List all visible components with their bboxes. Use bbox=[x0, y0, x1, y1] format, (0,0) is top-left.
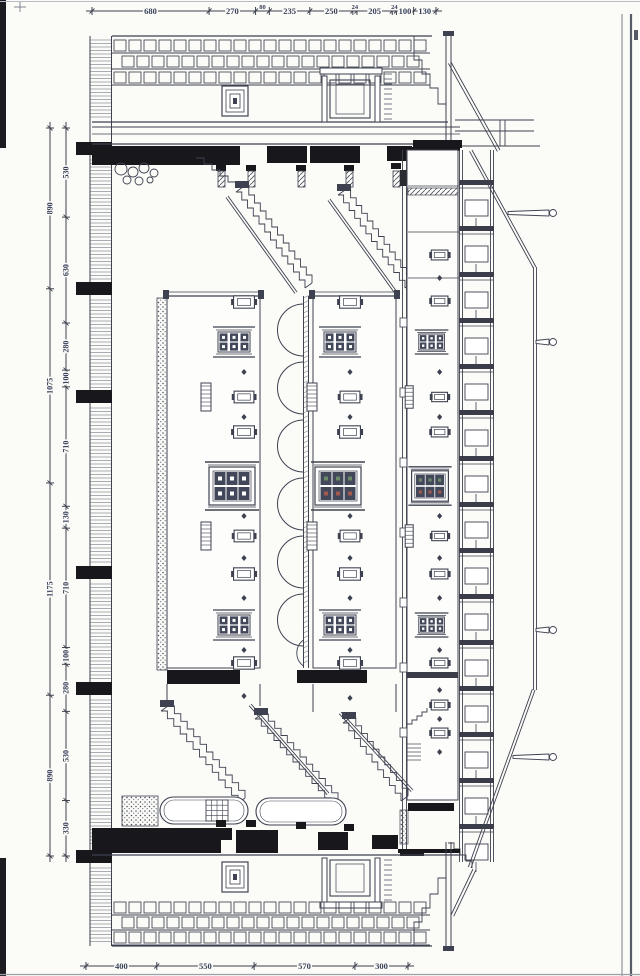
pole-finial bbox=[550, 754, 557, 761]
window-ear bbox=[429, 730, 432, 736]
pane-light bbox=[422, 620, 424, 622]
small-window bbox=[340, 391, 360, 403]
pane-light bbox=[428, 478, 431, 481]
pane-light bbox=[419, 490, 422, 493]
pane-light bbox=[422, 627, 424, 629]
dimension-label: 530 bbox=[62, 750, 71, 762]
window-ear bbox=[254, 533, 257, 539]
pane-light bbox=[230, 477, 234, 481]
pane-light bbox=[419, 478, 422, 481]
dimension-label: 1075 bbox=[46, 378, 55, 394]
dimension-label: 400 bbox=[115, 961, 128, 971]
pane-light bbox=[430, 620, 432, 622]
beam-end bbox=[465, 614, 488, 630]
window-ear bbox=[430, 533, 433, 539]
pane-light bbox=[222, 345, 225, 348]
pane-light bbox=[233, 628, 236, 631]
small-window bbox=[431, 728, 448, 738]
pane-light bbox=[328, 345, 331, 348]
dimension-label: 630 bbox=[62, 264, 71, 276]
pane-light bbox=[242, 492, 246, 496]
pane-light bbox=[336, 477, 340, 481]
dimension-label: 24 bbox=[352, 4, 359, 11]
dimension-label: 330 bbox=[62, 822, 71, 834]
section-poche bbox=[92, 828, 210, 853]
window-ear bbox=[337, 299, 340, 305]
window-ear bbox=[338, 533, 341, 539]
dimension-label: 280 bbox=[62, 682, 71, 694]
window-ear bbox=[360, 299, 363, 305]
pane-light bbox=[222, 628, 225, 631]
beam-section bbox=[76, 682, 112, 695]
window-ear bbox=[231, 660, 234, 666]
timber-post bbox=[298, 171, 305, 187]
pane-light bbox=[349, 628, 352, 631]
beam-end bbox=[465, 798, 488, 814]
pane-light bbox=[430, 337, 432, 339]
window-ear bbox=[448, 702, 451, 708]
window-ear bbox=[448, 252, 451, 258]
cornice-cap bbox=[258, 290, 264, 299]
window-ear bbox=[254, 660, 257, 666]
section-poche bbox=[92, 146, 240, 165]
window-ear bbox=[254, 394, 257, 400]
section-poche bbox=[236, 830, 278, 853]
beam-end bbox=[465, 522, 488, 538]
window-ear bbox=[337, 660, 340, 666]
pane-light bbox=[233, 619, 236, 622]
window-ear bbox=[448, 298, 451, 304]
window-ear bbox=[254, 299, 257, 305]
window-ear bbox=[429, 252, 432, 258]
pane-light bbox=[439, 337, 441, 339]
small-window bbox=[234, 568, 255, 580]
pane-light bbox=[218, 477, 222, 481]
small-window bbox=[234, 426, 255, 438]
shutter-panel bbox=[201, 383, 211, 411]
section-poche bbox=[267, 146, 307, 163]
pane-light bbox=[242, 477, 246, 481]
pole-finial bbox=[550, 627, 557, 634]
vault bbox=[160, 797, 248, 824]
dimension-label: 570 bbox=[298, 961, 311, 971]
ridge-pole bbox=[508, 210, 549, 216]
beam-end bbox=[465, 430, 488, 446]
window-ear bbox=[337, 571, 340, 577]
ridge-pole bbox=[536, 339, 549, 345]
window-ear bbox=[448, 730, 451, 736]
gate-post bbox=[322, 76, 327, 122]
dimension-label: 130 bbox=[418, 6, 431, 16]
beam-end bbox=[465, 568, 488, 584]
pane-light bbox=[324, 492, 328, 496]
corner-cap bbox=[443, 946, 454, 951]
bay-beam bbox=[459, 686, 494, 691]
bay-beam bbox=[459, 594, 494, 599]
pane-light bbox=[218, 492, 222, 496]
bay-beam bbox=[459, 640, 494, 645]
pane-light bbox=[349, 619, 352, 622]
window-ear bbox=[430, 394, 433, 400]
beam-end bbox=[465, 292, 488, 308]
shutter-panel bbox=[201, 522, 211, 550]
wall-body bbox=[112, 856, 448, 946]
pane-light bbox=[328, 628, 331, 631]
bay-beam bbox=[459, 318, 494, 323]
ridge-cap bbox=[342, 712, 356, 719]
window-ear bbox=[254, 571, 257, 577]
floor-poche bbox=[408, 803, 454, 811]
dimension-label: 24 bbox=[391, 4, 398, 11]
pane-light bbox=[336, 492, 340, 496]
dimension-label: 100 bbox=[399, 6, 412, 16]
hall-2 bbox=[307, 290, 400, 669]
dimension-label: 710 bbox=[62, 582, 71, 594]
beam-poche bbox=[413, 140, 462, 148]
pane-light bbox=[243, 345, 246, 348]
pane-light bbox=[230, 492, 234, 496]
wall-plaque bbox=[233, 874, 237, 880]
pane-light bbox=[439, 620, 441, 622]
beam-end bbox=[465, 706, 488, 722]
pane-light bbox=[349, 345, 352, 348]
window-ear bbox=[448, 571, 451, 577]
small-window bbox=[340, 426, 361, 438]
small-window bbox=[431, 700, 448, 710]
bay-beam bbox=[459, 778, 494, 783]
window-ear bbox=[360, 394, 363, 400]
timber-post bbox=[218, 171, 225, 187]
post-cap bbox=[296, 822, 306, 829]
pane-light bbox=[233, 345, 236, 348]
beam-end bbox=[465, 660, 488, 676]
section-poche bbox=[372, 835, 398, 849]
ridge-cap bbox=[337, 184, 351, 191]
bay-beam bbox=[459, 732, 494, 737]
sectioned-wall bbox=[400, 810, 408, 844]
timber-post bbox=[393, 171, 400, 187]
ridge-cap bbox=[235, 181, 249, 188]
hall-3 bbox=[405, 150, 458, 800]
pane-light bbox=[233, 336, 236, 339]
beam-section bbox=[76, 282, 112, 295]
window-ear bbox=[429, 429, 432, 435]
gate-post bbox=[322, 858, 327, 904]
beam-end bbox=[465, 476, 488, 492]
pane-light bbox=[243, 619, 246, 622]
cornice-cap bbox=[309, 290, 315, 299]
dimension-label: 280 bbox=[62, 341, 71, 353]
bay-beam bbox=[459, 272, 494, 277]
architectural-section-drawing: 6802708023525024205241001304005505703008… bbox=[0, 0, 640, 976]
sheet-mark bbox=[634, 30, 638, 40]
dimension-label: 890 bbox=[46, 202, 55, 214]
small-window bbox=[234, 391, 254, 403]
dimension-label: 250 bbox=[325, 6, 338, 16]
floor-poche bbox=[167, 670, 240, 684]
bay-beam bbox=[459, 410, 494, 415]
pane-light bbox=[324, 477, 328, 481]
post-cap bbox=[246, 165, 256, 171]
small-window bbox=[340, 530, 360, 542]
window-ear bbox=[447, 394, 450, 400]
window-ear bbox=[429, 571, 432, 577]
beam-section bbox=[76, 390, 112, 403]
window-ear bbox=[360, 429, 363, 435]
small-window bbox=[431, 658, 448, 668]
window-ear bbox=[232, 533, 235, 539]
pane-light bbox=[328, 336, 331, 339]
dimension-label: 80 bbox=[259, 4, 266, 11]
bay-beam bbox=[459, 548, 494, 553]
window-ear bbox=[429, 298, 432, 304]
section-poche bbox=[318, 832, 348, 850]
pane-light bbox=[328, 619, 331, 622]
section-poche bbox=[310, 146, 360, 163]
ridge-cap bbox=[160, 700, 174, 707]
small-window bbox=[431, 250, 448, 260]
rubble-fill bbox=[122, 796, 158, 826]
dimension-label: 710 bbox=[62, 441, 71, 453]
pane-light bbox=[422, 337, 424, 339]
pane-light bbox=[348, 477, 352, 481]
dimension-label: 530 bbox=[62, 167, 71, 179]
hall-1 bbox=[157, 290, 264, 670]
beam-end bbox=[465, 752, 488, 768]
dimension-label: 130 bbox=[62, 511, 71, 523]
floor-poche bbox=[407, 672, 458, 678]
beam-end bbox=[465, 246, 488, 262]
cornice-cap bbox=[394, 290, 400, 299]
eave-band bbox=[408, 188, 458, 195]
timber-post bbox=[248, 171, 255, 187]
small-window bbox=[340, 296, 361, 308]
beam-end bbox=[465, 338, 488, 354]
shutter-panel bbox=[405, 386, 413, 408]
dimension-label: 300 bbox=[375, 961, 388, 971]
window-ear bbox=[360, 571, 363, 577]
window-ear bbox=[429, 660, 432, 666]
post-cap bbox=[216, 820, 226, 827]
small-window bbox=[431, 427, 448, 437]
small-window bbox=[340, 568, 361, 580]
bay-beam bbox=[459, 824, 494, 829]
scan-edge bbox=[0, 858, 6, 976]
ridge-pole bbox=[513, 754, 549, 760]
beam-section bbox=[76, 566, 112, 579]
small-window bbox=[432, 531, 448, 540]
window-ear bbox=[231, 571, 234, 577]
window-ear bbox=[337, 429, 340, 435]
small-window bbox=[234, 296, 255, 308]
vault bbox=[256, 798, 346, 825]
post-cap bbox=[246, 820, 256, 827]
pole-finial bbox=[550, 210, 557, 217]
pane-light bbox=[222, 619, 225, 622]
gate-lintel bbox=[320, 68, 382, 74]
corner-cap bbox=[443, 31, 454, 36]
pane-light bbox=[339, 345, 342, 348]
pane-light bbox=[439, 344, 441, 346]
window-ear bbox=[448, 429, 451, 435]
pane-light bbox=[348, 492, 352, 496]
dimension-label: 205 bbox=[368, 6, 381, 16]
bay-beam bbox=[459, 226, 494, 231]
small-window bbox=[234, 530, 254, 542]
dimension-label: 890 bbox=[46, 770, 55, 782]
pane-light bbox=[243, 628, 246, 631]
floor-poche bbox=[297, 670, 367, 683]
shutter-panel bbox=[307, 522, 317, 550]
post-cap bbox=[344, 165, 354, 171]
small-window bbox=[432, 392, 448, 401]
window-ear bbox=[360, 533, 363, 539]
dimension-label: 550 bbox=[199, 961, 212, 971]
window-ear bbox=[231, 429, 234, 435]
small-window bbox=[340, 657, 361, 669]
window-ear bbox=[429, 702, 432, 708]
dimension-label: 680 bbox=[144, 6, 157, 16]
post-cap bbox=[296, 165, 306, 171]
pane-light bbox=[339, 336, 342, 339]
shutter-panel bbox=[405, 525, 413, 547]
bottom-boundary-wall bbox=[92, 842, 476, 951]
pane-light bbox=[438, 478, 441, 481]
gate-post bbox=[375, 76, 380, 122]
pane-light bbox=[339, 619, 342, 622]
dimension-label: 100 bbox=[62, 373, 71, 385]
pane-light bbox=[222, 336, 225, 339]
window-ear bbox=[448, 660, 451, 666]
pane-light bbox=[243, 336, 246, 339]
window-ear bbox=[231, 299, 234, 305]
bay-beam bbox=[459, 456, 494, 461]
window-ear bbox=[360, 660, 363, 666]
dimension-label: 270 bbox=[226, 6, 239, 16]
dimension-label: 235 bbox=[283, 6, 296, 16]
window-ear bbox=[447, 533, 450, 539]
small-window bbox=[431, 569, 448, 579]
pane-light bbox=[438, 490, 441, 493]
wall-plaque bbox=[233, 98, 237, 104]
bay-beam bbox=[459, 502, 494, 507]
dimension-label: 100 bbox=[62, 650, 71, 662]
pole-finial bbox=[550, 339, 557, 346]
pane-light bbox=[339, 628, 342, 631]
bay-beam bbox=[459, 364, 494, 369]
pane-light bbox=[430, 627, 432, 629]
dimension-label: 1175 bbox=[46, 581, 55, 597]
ridge-cap bbox=[254, 708, 268, 715]
post-cap bbox=[344, 824, 354, 831]
pane-light bbox=[422, 344, 424, 346]
small-window bbox=[234, 657, 255, 669]
ridge-pole bbox=[536, 627, 549, 633]
pane-light bbox=[428, 490, 431, 493]
small-window bbox=[431, 296, 448, 306]
gate-post bbox=[375, 858, 380, 904]
pane-light bbox=[349, 336, 352, 339]
pane-light bbox=[430, 344, 432, 346]
window-ear bbox=[254, 429, 257, 435]
pane-light bbox=[439, 627, 441, 629]
window-ear bbox=[232, 394, 235, 400]
window-ear bbox=[338, 394, 341, 400]
beam-end bbox=[465, 200, 488, 216]
sectioned-wall bbox=[157, 298, 167, 670]
post-cap bbox=[391, 163, 401, 169]
scan-edge bbox=[0, 0, 6, 148]
shutter-panel bbox=[307, 383, 317, 411]
beam-end bbox=[465, 384, 488, 400]
